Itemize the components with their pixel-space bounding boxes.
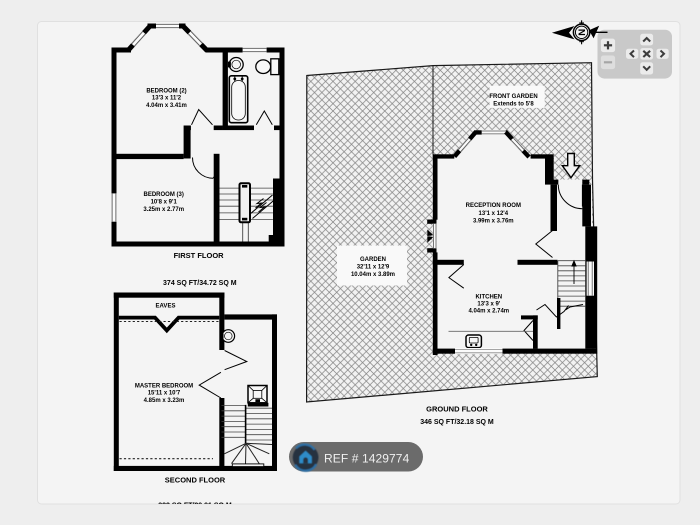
svg-text:10'8 x 9'1: 10'8 x 9'1 [151, 199, 178, 205]
svg-text:374 SQ FT/34.72 SQ M: 374 SQ FT/34.72 SQ M [163, 280, 237, 287]
svg-text:13'1 x 12'4: 13'1 x 12'4 [479, 211, 509, 217]
svg-text:32'11 x 12'9: 32'11 x 12'9 [357, 265, 390, 271]
svg-text:15'11 x 10'7: 15'11 x 10'7 [148, 391, 181, 397]
svg-text:RECEPTION ROOM: RECEPTION ROOM [466, 203, 521, 209]
svg-text:BEDROOM (2): BEDROOM (2) [146, 88, 186, 94]
svg-text:4.04m x 3.41m: 4.04m x 3.41m [146, 103, 187, 109]
svg-text:MASTER BEDROOM: MASTER BEDROOM [135, 383, 193, 389]
svg-text:Extends to 5'8: Extends to 5'8 [493, 101, 534, 107]
svg-text:FRONT GARDEN: FRONT GARDEN [489, 94, 537, 100]
svg-text:FIRST FLOOR: FIRST FLOOR [174, 251, 225, 260]
svg-text:3.99m x 3.76m: 3.99m x 3.76m [473, 218, 514, 224]
svg-text:346 SQ FT/32.18 SQ M: 346 SQ FT/32.18 SQ M [420, 419, 494, 426]
svg-text:N: N [577, 29, 588, 36]
svg-text:322 SQ FT/29.91 SQ M: 322 SQ FT/29.91 SQ M [158, 502, 232, 509]
svg-text:13'3 x 9': 13'3 x 9' [477, 301, 500, 307]
svg-text:BEDROOM (3): BEDROOM (3) [144, 192, 184, 198]
svg-text:3.25m x 2.77m: 3.25m x 2.77m [143, 207, 184, 213]
svg-text:REF # 1429774: REF # 1429774 [324, 452, 410, 466]
svg-text:EAVES: EAVES [156, 303, 176, 309]
svg-text:10.04m x 3.89m: 10.04m x 3.89m [351, 272, 395, 278]
svg-text:SECOND FLOOR: SECOND FLOOR [165, 476, 226, 485]
svg-text:GARDEN: GARDEN [360, 257, 386, 263]
svg-text:GROUND FLOOR: GROUND FLOOR [426, 405, 488, 414]
svg-text:13'3 x 11'2: 13'3 x 11'2 [152, 96, 182, 102]
svg-text:KITCHEN: KITCHEN [475, 294, 502, 300]
svg-text:4.04m x 2.74m: 4.04m x 2.74m [468, 309, 509, 315]
svg-text:4.85m x 3.23m: 4.85m x 3.23m [144, 398, 185, 404]
